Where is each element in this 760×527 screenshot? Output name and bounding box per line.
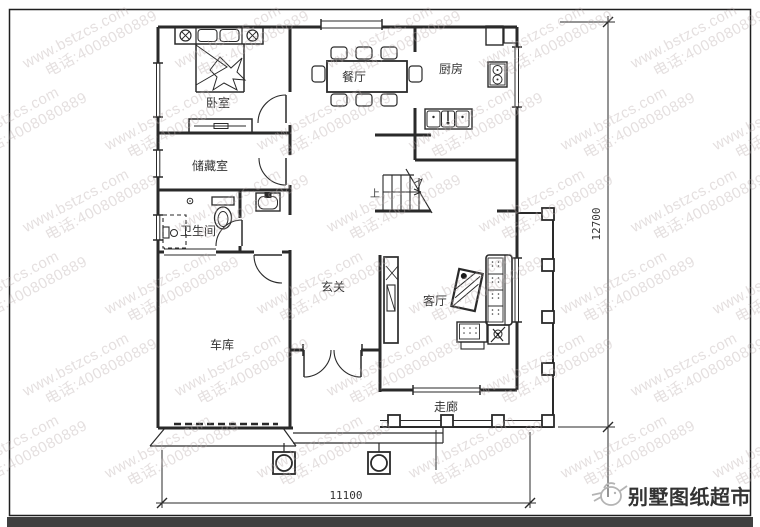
fridge bbox=[486, 26, 503, 45]
kitchen-fixtures bbox=[425, 26, 517, 129]
plant-table bbox=[488, 325, 509, 344]
floor-plan: 11100 12700 卧室 餐厅 厨房 储藏室 卫生间 玄关 客厅 车库 走廊… bbox=[0, 0, 760, 527]
room-label-storage: 储藏室 bbox=[192, 158, 228, 173]
tv-cabinet bbox=[384, 257, 398, 343]
room-label-bedroom: 卧室 bbox=[206, 95, 230, 110]
room-label-foyer: 玄关 bbox=[321, 279, 345, 294]
dimension-width-label: 11100 bbox=[329, 489, 362, 502]
living-furniture bbox=[384, 255, 512, 349]
stairs-up-label: 上 bbox=[370, 188, 380, 200]
room-label-corridor: 走廊 bbox=[434, 399, 458, 414]
room-label-kitchen: 厨房 bbox=[439, 61, 463, 76]
toilet bbox=[212, 197, 234, 205]
room-label-dining: 餐厅 bbox=[342, 69, 366, 84]
room-label-bathroom: 卫生间 bbox=[180, 224, 216, 238]
porch-ramp bbox=[150, 424, 443, 474]
staircase bbox=[383, 169, 432, 213]
brand-name: 别墅图纸超市 bbox=[627, 485, 751, 509]
dimension-height-label: 12700 bbox=[590, 207, 603, 240]
bathroom-fixtures bbox=[163, 192, 280, 248]
sofa bbox=[486, 255, 512, 325]
room-label-living: 客厅 bbox=[423, 293, 447, 308]
porch-columns bbox=[273, 452, 390, 474]
bottom-bar bbox=[7, 517, 753, 527]
armchair bbox=[457, 322, 487, 349]
bird-logo-icon bbox=[592, 483, 627, 505]
bedroom-bed bbox=[175, 27, 263, 133]
coffee-table bbox=[451, 269, 482, 311]
dining-table-set bbox=[312, 47, 422, 106]
room-label-garage: 车库 bbox=[210, 337, 234, 352]
entrance-double-door bbox=[304, 350, 361, 377]
screenshot-canvas: 11100 12700 卧室 餐厅 厨房 储藏室 卫生间 玄关 客厅 车库 走廊… bbox=[0, 0, 760, 527]
brand-logo: 别墅图纸超市 bbox=[592, 483, 751, 509]
